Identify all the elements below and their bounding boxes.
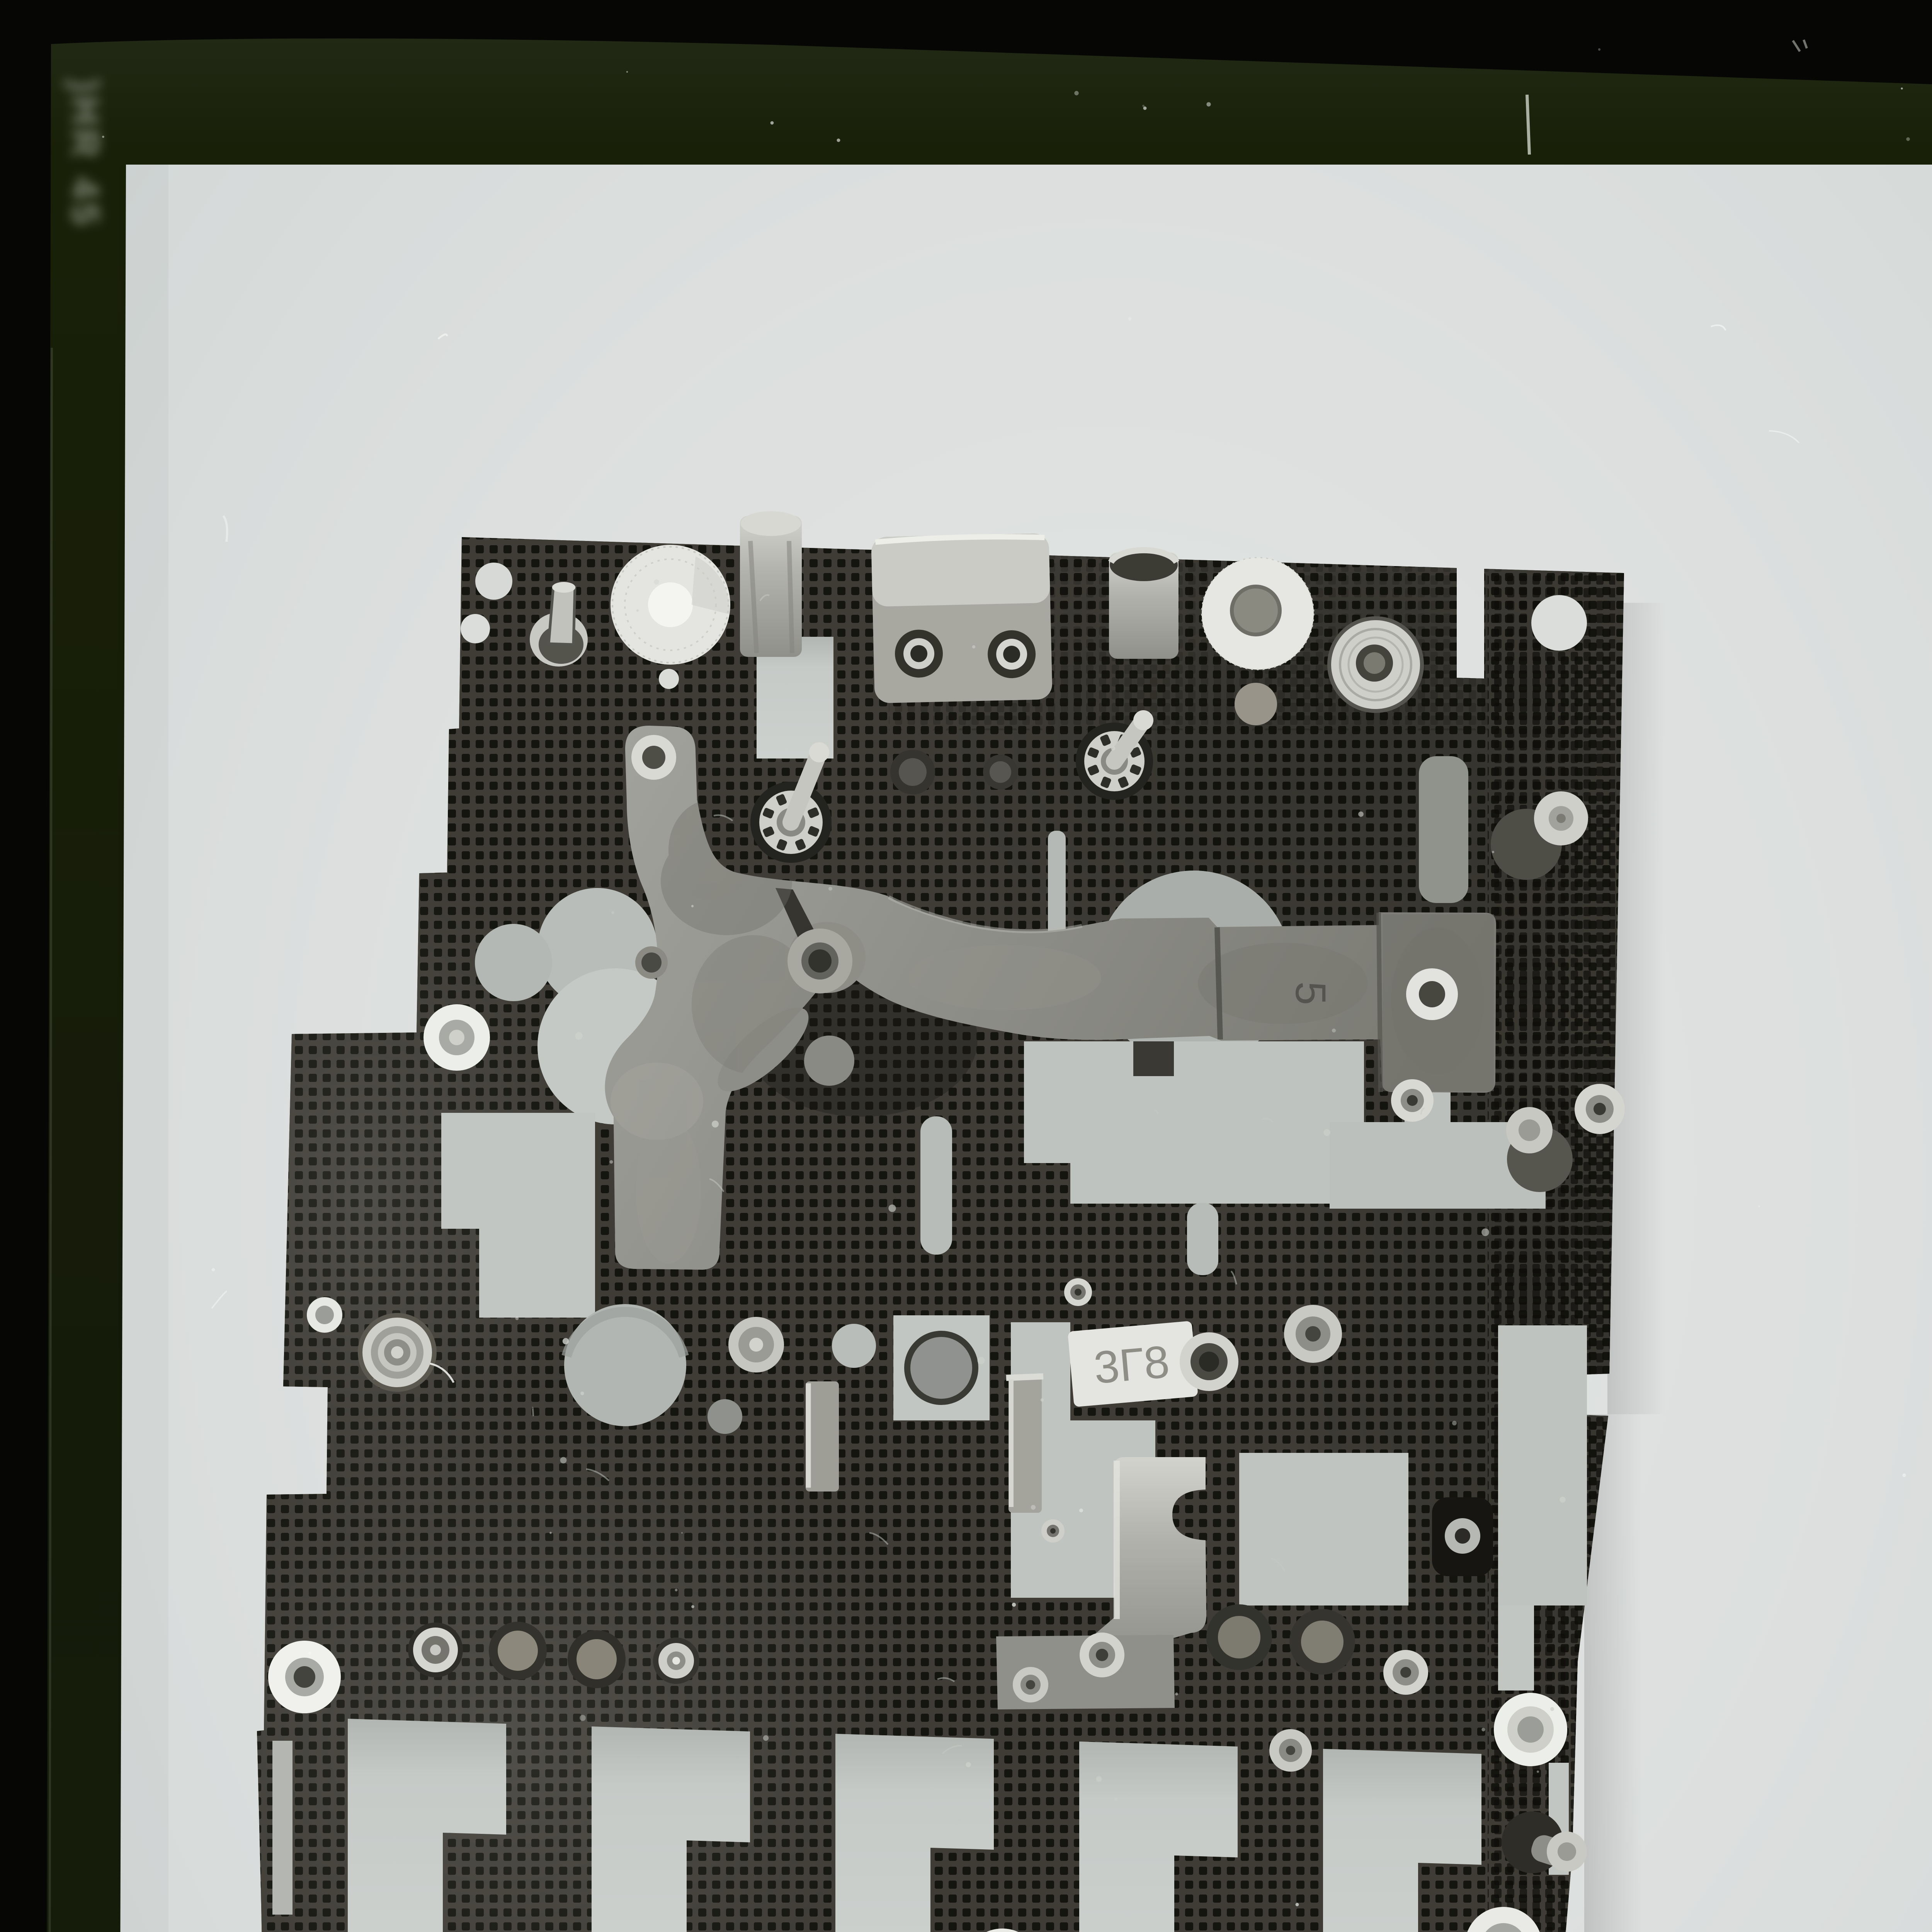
svg-text:5: 5	[1287, 981, 1334, 1005]
svg-text:)HR 45: )HR 45	[64, 79, 107, 230]
svg-text:3Г8: 3Г8	[1092, 1336, 1172, 1394]
